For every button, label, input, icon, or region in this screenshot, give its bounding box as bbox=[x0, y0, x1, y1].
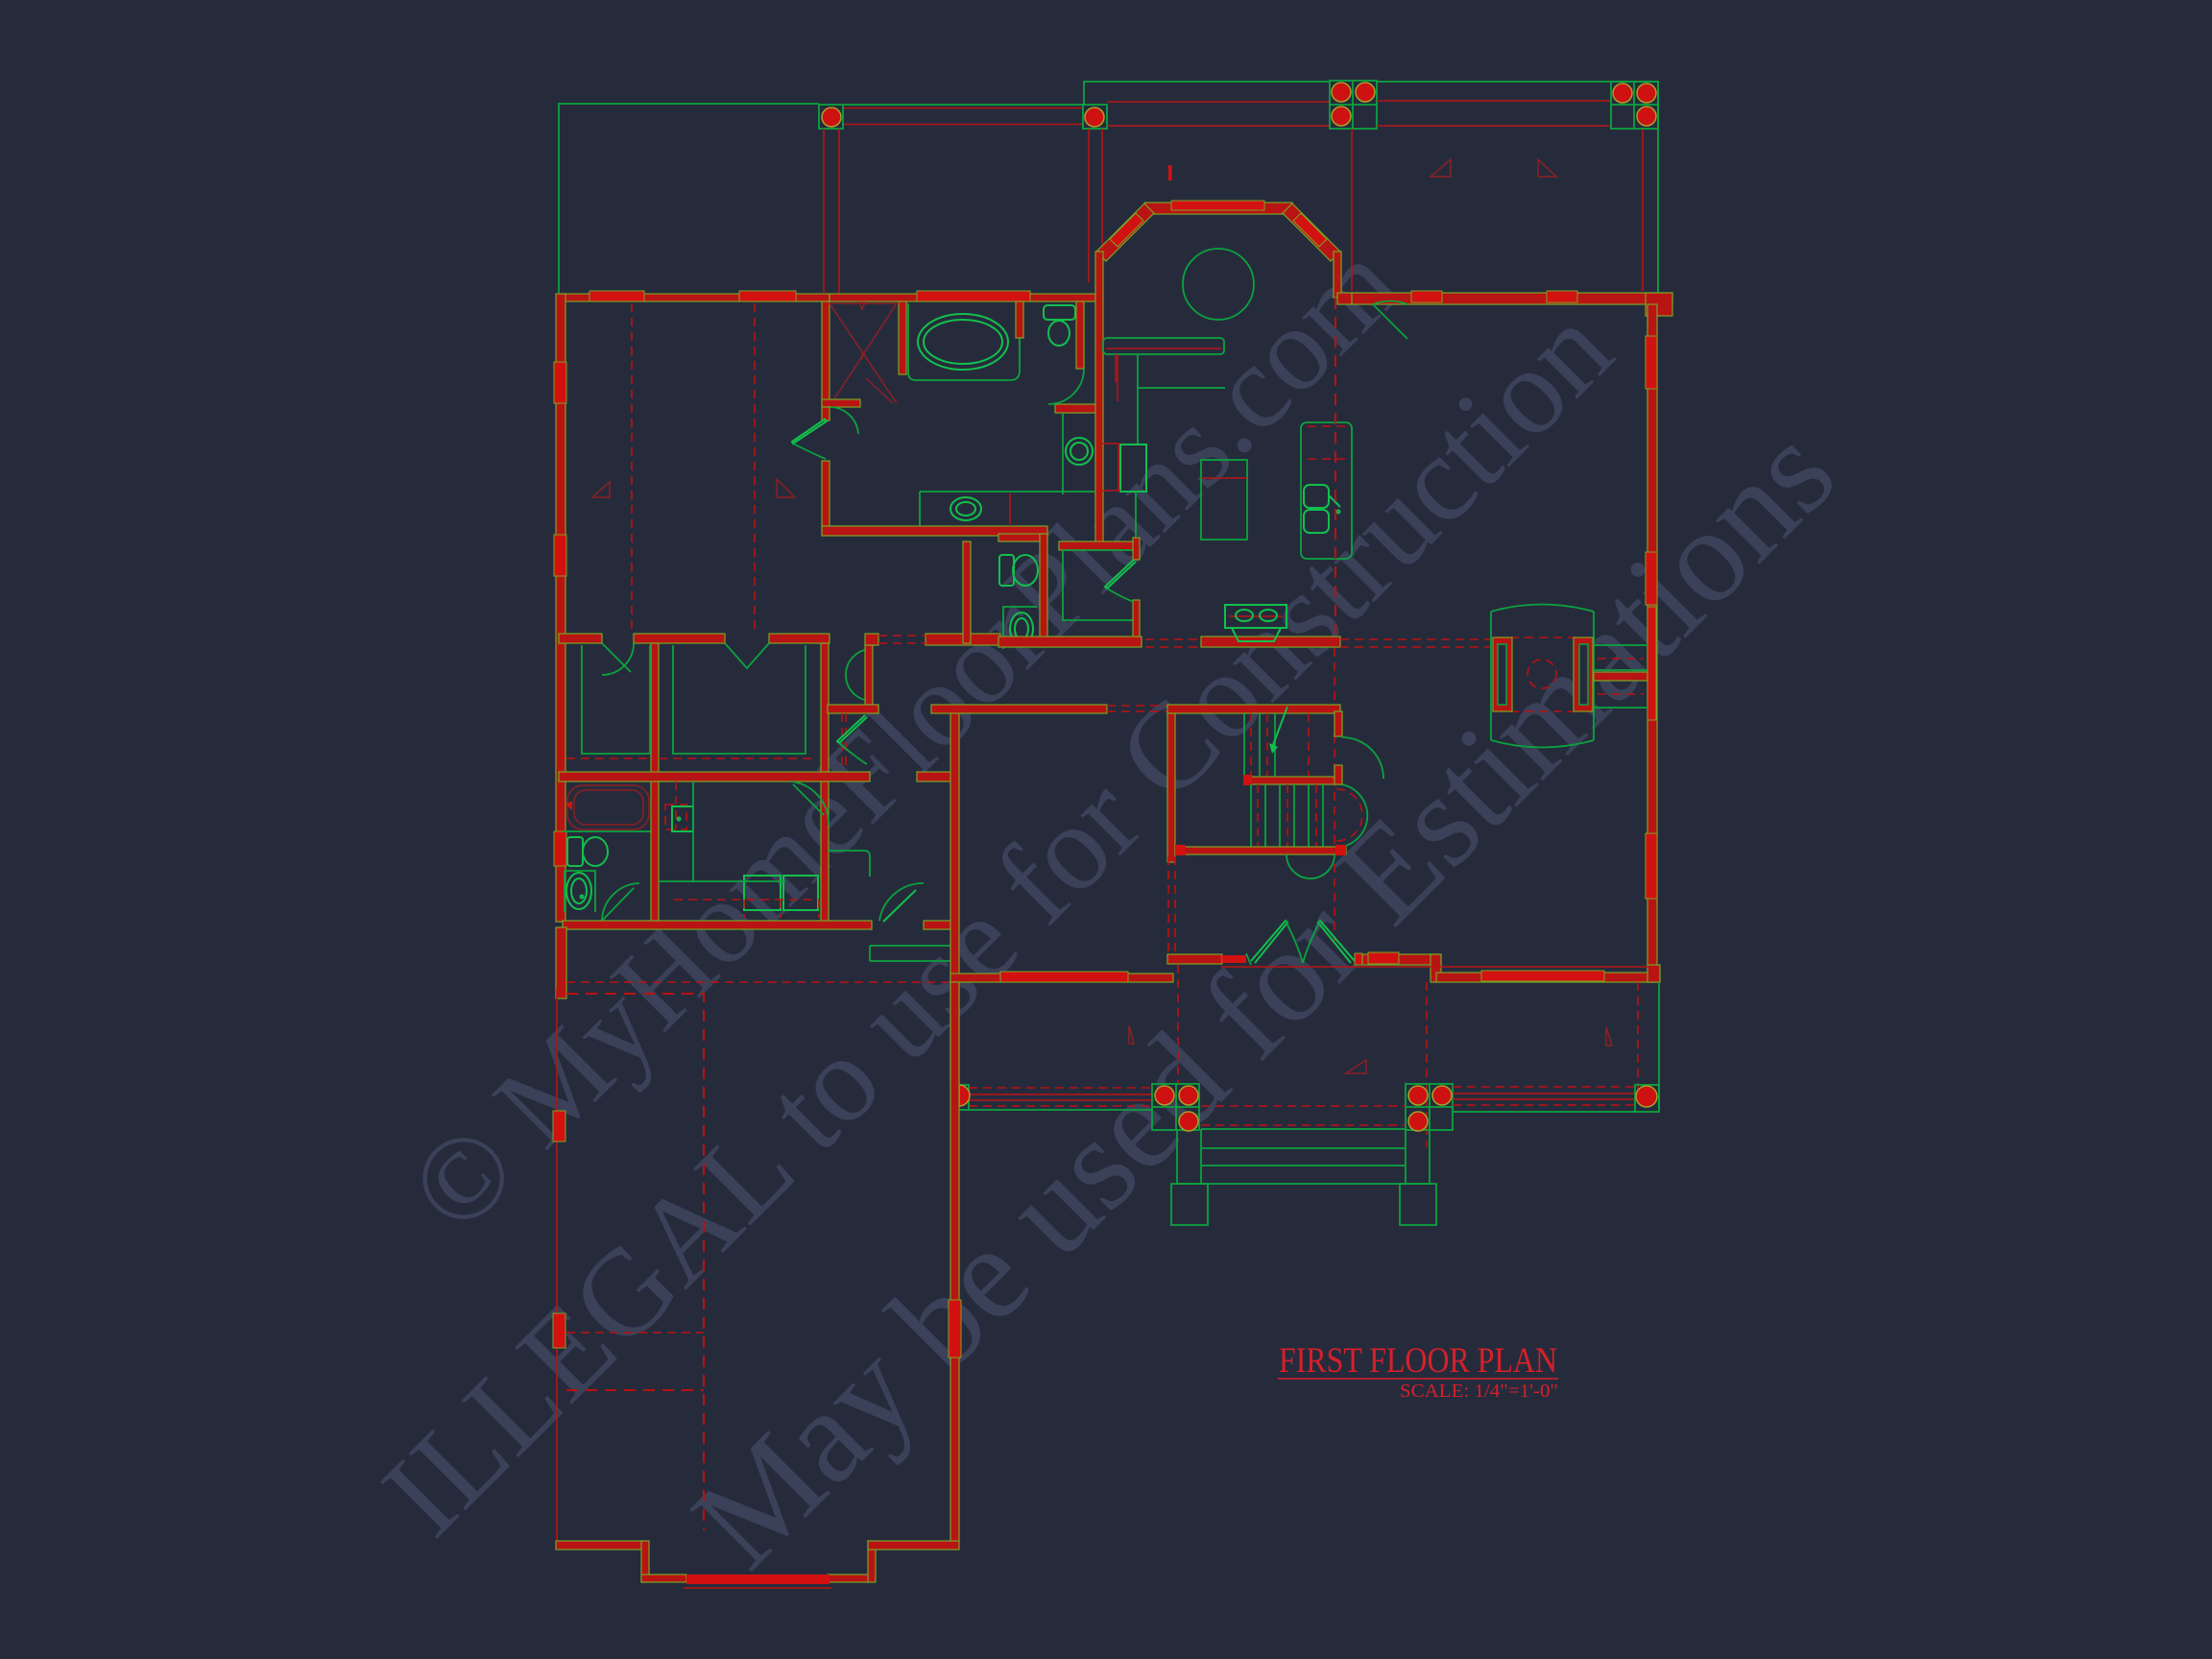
svg-text:FIRST FLOOR PLAN: FIRST FLOOR PLAN bbox=[1279, 1341, 1557, 1381]
svg-text:SCALE: 1/4"=1'-0": SCALE: 1/4"=1'-0" bbox=[1400, 1381, 1558, 1402]
